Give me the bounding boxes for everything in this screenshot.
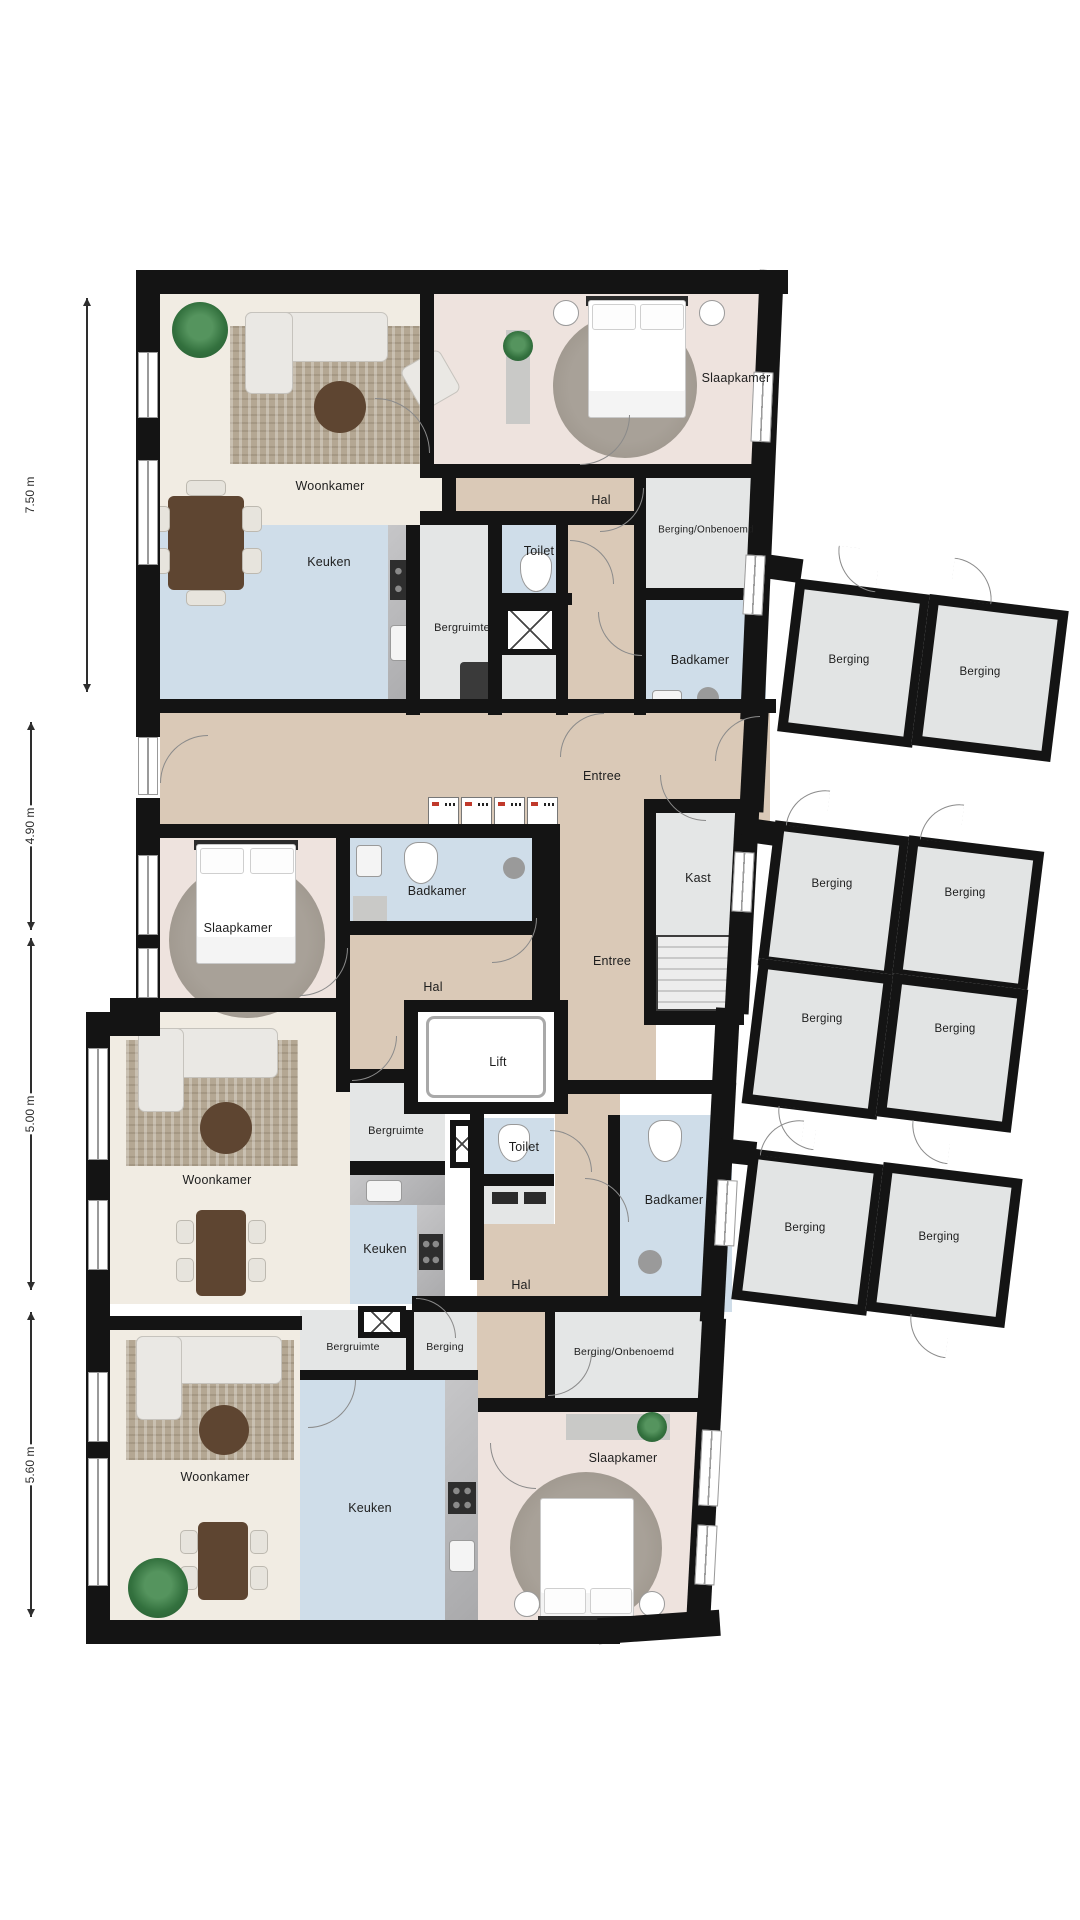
pillow xyxy=(592,304,636,330)
room-label: Slaapkamer xyxy=(204,921,273,935)
dimension-arrow-down xyxy=(83,684,91,692)
room-label: Badkamer xyxy=(671,653,730,667)
mailbox-red-tag xyxy=(531,802,538,806)
dimension-arrow-down xyxy=(27,1282,35,1290)
dimension-arrow-down xyxy=(27,922,35,930)
wall xyxy=(110,998,350,1012)
plant xyxy=(503,331,533,361)
wall xyxy=(406,525,420,715)
room-label: Lift xyxy=(489,1055,506,1069)
wall xyxy=(406,1310,414,1378)
coffee-table xyxy=(199,1405,249,1455)
wall xyxy=(110,1316,302,1330)
chair xyxy=(176,1258,194,1282)
sofa-chaise xyxy=(245,312,293,394)
sink xyxy=(449,1540,475,1572)
wall-left-pier xyxy=(136,713,160,737)
window xyxy=(138,460,158,565)
room-label: Berging/Onbenoemd xyxy=(658,525,754,536)
window xyxy=(88,1048,108,1160)
dimension-label: 5.00 m xyxy=(20,1094,40,1135)
room-label: Berging xyxy=(784,1222,825,1234)
room-label: Keuken xyxy=(363,1242,407,1256)
room-berging-annex-8 xyxy=(865,1162,1022,1328)
pillow xyxy=(200,848,244,874)
room-berging-annex-3 xyxy=(758,820,911,981)
dimension-line xyxy=(86,298,88,692)
room-label: Woonkamer xyxy=(181,1470,250,1484)
room-label: Keuken xyxy=(348,1501,392,1515)
room-berging-annex-4 xyxy=(892,835,1045,995)
room-label: Badkamer xyxy=(408,884,467,898)
mailbox-dots xyxy=(478,803,488,806)
wall xyxy=(136,824,560,838)
pillow xyxy=(590,1588,632,1614)
room-label: Woonkamer xyxy=(296,479,365,493)
pillow xyxy=(544,1588,586,1614)
sofa-chaise xyxy=(136,1336,182,1420)
room-label: Berging xyxy=(801,1013,842,1025)
room-label: Berging xyxy=(934,1023,975,1035)
room-label: Hal xyxy=(511,1278,530,1292)
window xyxy=(698,1430,722,1507)
window xyxy=(694,1525,717,1586)
wall xyxy=(412,1296,702,1312)
hob xyxy=(448,1482,476,1514)
dining-table xyxy=(196,1210,246,1296)
room-label: Bergruimte xyxy=(434,622,490,634)
shower-drain xyxy=(638,1250,662,1274)
room-label: Toilet xyxy=(524,544,554,558)
room-label: Entree xyxy=(583,769,621,783)
room-hal-c1 xyxy=(484,1224,555,1280)
plant xyxy=(128,1558,188,1618)
chair xyxy=(242,506,262,532)
shower-drain xyxy=(503,857,525,879)
wall-annex-stub xyxy=(719,1138,757,1166)
wall-top xyxy=(136,270,788,294)
sofa-chaise xyxy=(138,1028,184,1112)
wall xyxy=(644,1011,744,1025)
window xyxy=(138,948,158,998)
hob xyxy=(419,1234,443,1270)
room-label: Berging xyxy=(944,887,985,899)
chair xyxy=(250,1566,268,1590)
window xyxy=(138,352,158,418)
window xyxy=(138,855,158,935)
plant xyxy=(172,302,228,358)
sink xyxy=(356,845,382,877)
dining-table xyxy=(198,1522,248,1600)
wall-clock xyxy=(699,300,725,326)
door-arc xyxy=(908,1120,953,1165)
room-berging-annex-2 xyxy=(911,594,1068,762)
coffee-table xyxy=(314,381,366,433)
room-berging-annex-5 xyxy=(742,958,895,1119)
room-label: Slaapkamer xyxy=(589,1451,658,1465)
chair xyxy=(242,548,262,574)
lift-car xyxy=(426,1016,546,1098)
dimension-arrow-up xyxy=(27,1312,35,1320)
meter-box xyxy=(524,1192,546,1204)
window xyxy=(138,737,158,795)
window xyxy=(88,1458,108,1586)
dimension-label: 5.60 m xyxy=(20,1444,40,1485)
wall xyxy=(478,1398,706,1412)
wall xyxy=(300,1370,478,1380)
door-arc xyxy=(920,800,965,845)
dimension-arrow-up xyxy=(27,938,35,946)
room-label: Berging xyxy=(828,654,869,666)
room-label: Keuken xyxy=(307,555,351,569)
room-label: Hal xyxy=(591,493,610,507)
stairs xyxy=(656,935,736,1011)
plant xyxy=(637,1412,667,1442)
meter-box xyxy=(492,1192,518,1204)
ceiling-fan xyxy=(514,1591,540,1617)
dimension-arrow-up xyxy=(83,298,91,306)
wall xyxy=(420,464,772,478)
dining-table xyxy=(168,496,244,590)
dimension-arrow-down xyxy=(27,1609,35,1617)
door-arc xyxy=(786,786,831,831)
pillow xyxy=(250,848,294,874)
shaft-void xyxy=(450,1120,474,1168)
pillow xyxy=(640,304,684,330)
chair xyxy=(176,1220,194,1244)
wall-bottom xyxy=(86,1620,620,1644)
wall-clock xyxy=(553,300,579,326)
room-label: Berging xyxy=(959,666,1000,678)
window xyxy=(731,852,754,913)
mailbox-dots xyxy=(445,803,455,806)
chair xyxy=(186,480,226,496)
wall xyxy=(644,813,656,1011)
dimension-label: 7.50 m xyxy=(20,475,40,516)
shaft-void xyxy=(502,605,558,655)
wall xyxy=(350,1161,445,1175)
room-label: Woonkamer xyxy=(183,1173,252,1187)
room-label: Slaapkamer xyxy=(702,371,771,385)
coffee-table xyxy=(200,1102,252,1154)
room-label: Berging xyxy=(918,1231,959,1243)
door-arc xyxy=(906,1314,951,1359)
room-label: Kast xyxy=(685,871,711,885)
sink xyxy=(366,1180,402,1202)
room-label: Berging xyxy=(426,1341,464,1353)
window xyxy=(88,1200,108,1270)
window xyxy=(742,555,765,616)
mailbox-red-tag xyxy=(432,802,439,806)
mailbox-dots xyxy=(544,803,554,806)
room-label: Badkamer xyxy=(645,1193,704,1207)
floor-plan-canvas: WoonkamerKeukenBergruimteToiletHalSlaapk… xyxy=(0,0,1080,1920)
chair xyxy=(186,590,226,606)
room-label: Bergruimte xyxy=(368,1125,424,1137)
chair xyxy=(250,1530,268,1554)
room-label: Bergruimte xyxy=(326,1341,379,1353)
mailbox-dots xyxy=(511,803,521,806)
shaft-void xyxy=(358,1306,406,1338)
wall xyxy=(488,525,502,715)
dimension-label: 4.90 m xyxy=(20,806,40,847)
window xyxy=(88,1372,108,1442)
door-arc xyxy=(950,558,997,605)
window xyxy=(714,1180,737,1247)
chair xyxy=(180,1530,198,1554)
room-label: Toilet xyxy=(509,1140,539,1154)
chair xyxy=(248,1258,266,1282)
room-label: Berging/Onbenoemd xyxy=(574,1346,674,1358)
wall xyxy=(136,699,776,713)
wall xyxy=(484,1174,554,1186)
room-label: Hal xyxy=(423,980,442,994)
chair xyxy=(248,1220,266,1244)
mailbox-red-tag xyxy=(498,802,505,806)
room-label: Entree xyxy=(593,954,631,968)
room-berging-annex-6 xyxy=(876,973,1029,1133)
room-label: Berging xyxy=(811,878,852,890)
wall xyxy=(546,1080,732,1094)
dimension-arrow-up xyxy=(27,722,35,730)
mailbox-red-tag xyxy=(465,802,472,806)
